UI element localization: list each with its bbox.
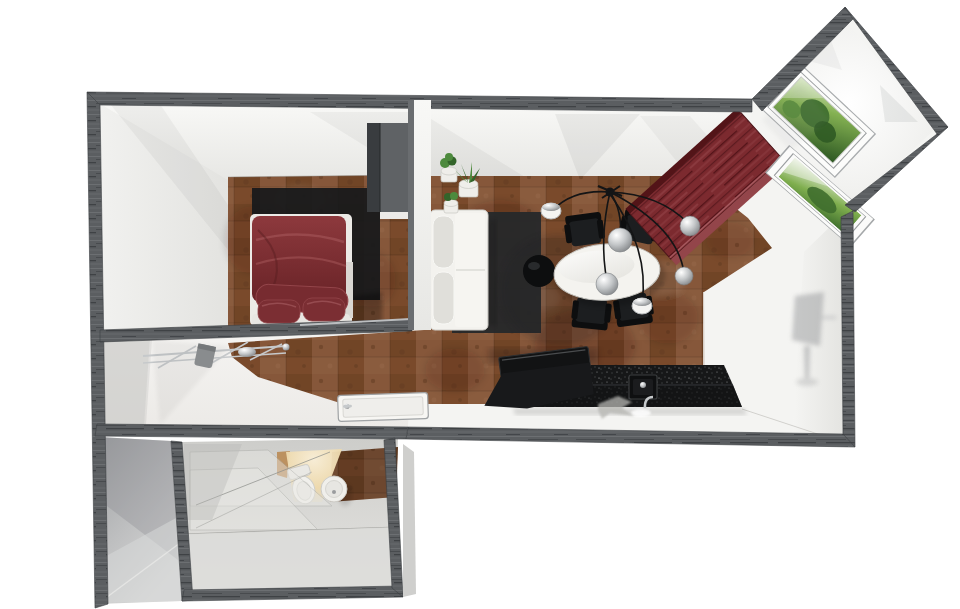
chair — [563, 211, 606, 247]
side-table[interactable]: Round black side table — [523, 255, 555, 287]
wardrobe-base-strip — [380, 212, 412, 219]
pendant-shade-cone — [632, 298, 652, 314]
bidet-lid — [326, 481, 343, 498]
door-inner-panel — [343, 397, 424, 418]
rack-end-knob — [283, 344, 290, 351]
sink-splash-glow — [631, 409, 651, 417]
pendant-shade-ball — [675, 267, 693, 285]
pendant-shade-ball — [680, 216, 700, 236]
pendant-shade-ball — [596, 273, 618, 295]
bidet-button — [332, 490, 336, 494]
pendant-shade-ball — [608, 228, 632, 252]
sofa-cushion-top — [433, 216, 454, 268]
wardrobe-side-panel — [367, 123, 380, 212]
floorplan-stage: Dark bed platform rug Double bed with da… — [0, 0, 960, 609]
door-handle-bar — [343, 405, 352, 408]
wall-partition-face — [414, 100, 431, 330]
wall-right — [841, 211, 855, 447]
rack-roll — [238, 347, 256, 357]
side-table-highlight — [528, 262, 540, 270]
wall-box-right-face — [403, 444, 416, 597]
wardrobe-front-panel — [380, 123, 412, 212]
sofa-cushion-bottom — [433, 272, 454, 324]
wall-hall-bottom — [95, 424, 408, 439]
sofa-shadow — [488, 220, 497, 326]
wall-partition-edge — [408, 100, 414, 330]
side-table-top — [523, 255, 555, 287]
plant-pot-3 — [444, 192, 458, 213]
hall-shadow — [101, 333, 152, 425]
floorplan-svg: Dark bed platform rug Double bed with da… — [0, 0, 960, 609]
interior-door[interactable]: White interior door (plan view) — [338, 392, 429, 421]
sink-drain — [640, 382, 646, 388]
pendant-shade-cone — [541, 203, 561, 219]
bath-front-zone — [184, 527, 398, 590]
sofa[interactable]: White two-seat sofa — [430, 210, 497, 330]
bed[interactable]: Double bed with dark red bedding — [250, 214, 353, 326]
bathroom: Toilet Round ceramic fixture Glass showe… — [182, 438, 398, 590]
